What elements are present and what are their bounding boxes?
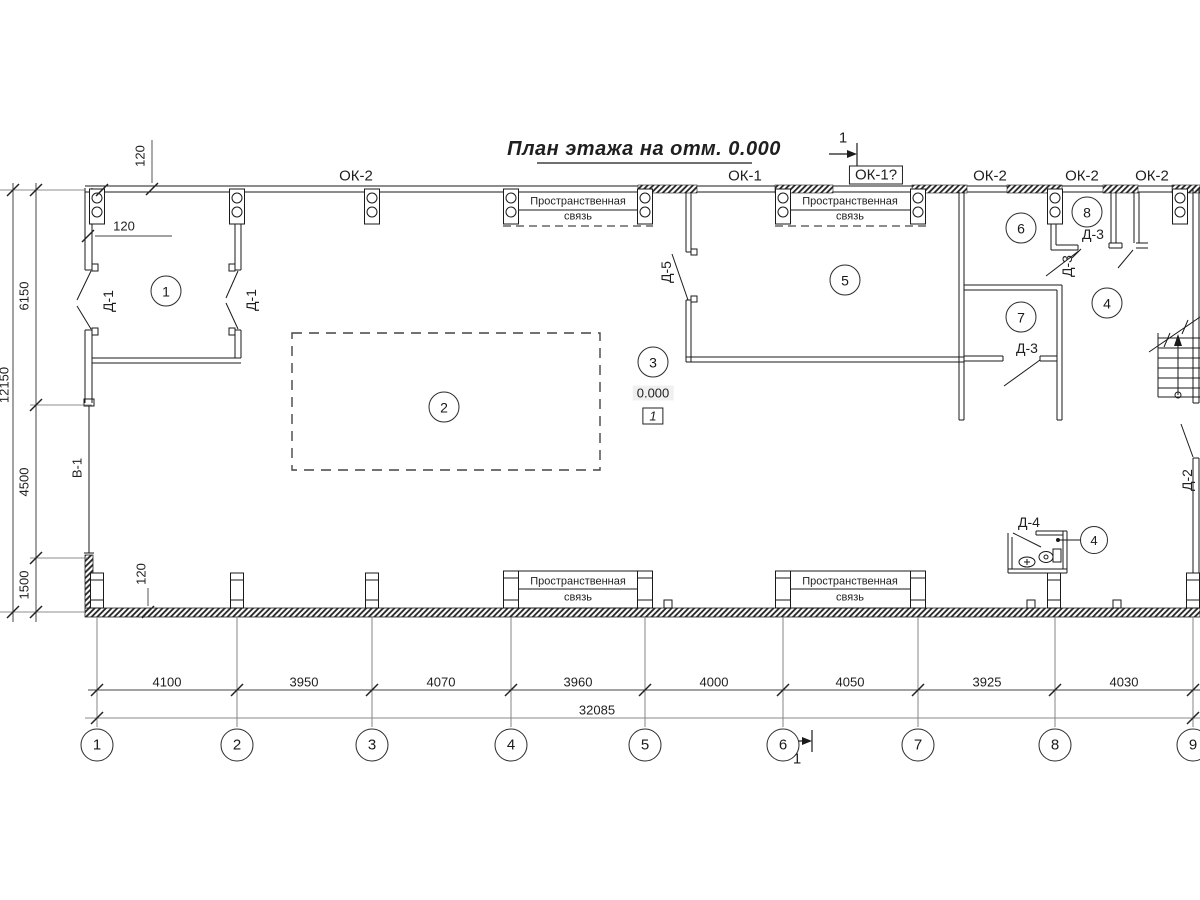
tie-label-top2-line1: Пространственная (802, 197, 898, 208)
room-bubble-6: 6 (1006, 213, 1037, 244)
door-mark-d3-room6: Д-3 (1060, 255, 1074, 277)
door-mark-d1-right: Д-1 (244, 289, 258, 311)
elevation-mark: 0.000 (633, 386, 674, 401)
grid-bubble-1: 1 (81, 729, 114, 762)
grid-bubble-8: 8 (1039, 729, 1072, 762)
door-mark-d1-left: Д-1 (101, 290, 115, 312)
wc-room (1008, 531, 1081, 573)
window-mark-ok1: ОК-1 (728, 169, 762, 184)
floor-plan-drawing: План этажа на отм. 0.000 1 1 ОК-2 ОК-1 О… (0, 0, 1200, 900)
dim-2-3: 3950 (290, 676, 319, 689)
left-dimension-lines (0, 183, 92, 622)
room-bubble-8: 8 (1072, 197, 1103, 228)
room-bubble-4b: 4 (1080, 526, 1108, 554)
window-mark-ok1-query: ОК-1? (849, 166, 903, 185)
room-bubble-4a: 4 (1092, 288, 1123, 319)
room-bubble-2: 2 (429, 392, 460, 423)
tie-label-bot1-line1: Пространственная (530, 577, 626, 588)
window-mark-ok2-2: ОК-2 (973, 169, 1007, 184)
grid-bubble-2: 2 (221, 729, 254, 762)
tie-label-top1-line2: связь (564, 212, 592, 223)
room-bubble-1: 1 (151, 276, 182, 307)
dim-total: 32085 (579, 704, 615, 717)
tie-label-top1-line1: Пространственная (530, 197, 626, 208)
window-mark-ok2-3: ОК-2 (1065, 169, 1099, 184)
tie-label-bot2-line1: Пространственная (802, 577, 898, 588)
dim-5-6: 4000 (700, 676, 729, 689)
gate-mark-v1: В-1 (71, 458, 84, 478)
grid-bubble-7: 7 (902, 729, 935, 762)
dim-4-5: 3960 (564, 676, 593, 689)
grid-bubble-3: 3 (356, 729, 389, 762)
right-wall (1181, 188, 1199, 573)
room-bubble-7: 7 (1006, 302, 1037, 333)
tie-label-bot1-line2: связь (564, 593, 592, 604)
tie-label-top2-line2: связь (836, 212, 864, 223)
dim-120-bottom: 120 (135, 563, 148, 585)
door-mark-d5: Д-5 (659, 261, 673, 283)
dim-left-4500: 4500 (18, 468, 31, 497)
room-bubble-5: 5 (830, 265, 861, 296)
stairs (1149, 317, 1200, 398)
grid-bubble-5: 5 (629, 729, 662, 762)
left-wall (77, 188, 98, 553)
door-mark-d2: Д-2 (1180, 469, 1194, 491)
dim-left-1500: 1500 (18, 571, 31, 600)
dim-3-4: 4070 (427, 676, 456, 689)
dim-6-7: 4050 (836, 676, 865, 689)
page-title: План этажа на отм. 0.000 (507, 139, 781, 159)
dim-7-8: 3925 (973, 676, 1002, 689)
dim-1-2: 4100 (153, 676, 182, 689)
dimension-lines (85, 690, 1200, 718)
door-mark-d3-room7: Д-3 (1016, 341, 1038, 355)
room-bubble-3: 3 (638, 347, 669, 378)
window-mark-ok2-1: ОК-2 (339, 169, 373, 184)
dim-8-9: 4030 (1110, 676, 1139, 689)
tie-label-bot2-line2: связь (836, 593, 864, 604)
dim-left-total: 12150 (0, 367, 11, 403)
door-mark-d4: Д-4 (1018, 515, 1040, 529)
dim-left-6150: 6150 (18, 282, 31, 311)
dim-120-top: 120 (134, 145, 147, 167)
grid-bubble-4: 4 (495, 729, 528, 762)
dim-120-left: 120 (113, 220, 135, 233)
section-mark-top: 1 (839, 131, 847, 146)
grid-lines (97, 617, 1193, 727)
node-marker: 1 (642, 408, 663, 425)
grid-bubble-6: 6 (767, 729, 800, 762)
toilet-icon (1039, 552, 1053, 563)
plan-linework (0, 0, 1200, 900)
window-mark-ok2-4: ОК-2 (1135, 169, 1169, 184)
door-mark-d3-room8: Д-3 (1082, 227, 1104, 241)
